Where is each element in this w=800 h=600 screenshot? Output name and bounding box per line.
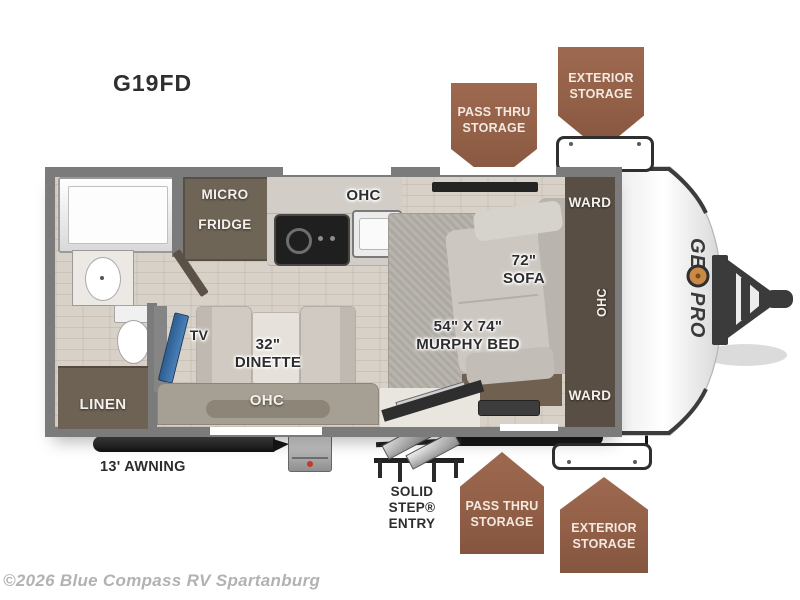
micro-label: MICRO [183, 186, 267, 204]
dinette-label: 32" DINETTE [215, 336, 321, 372]
solid-step-entry-label: SOLID STEP® ENTRY [366, 484, 458, 533]
step-leg [432, 462, 436, 482]
rv-floorplan-diagram: G19FD PASS THRU STORAGE EXTERIOR STORAGE… [0, 0, 800, 600]
badge-exterior-storage-bottom: EXTERIOR STORAGE [560, 477, 648, 573]
badge-label: STORAGE [471, 515, 534, 531]
tv-label: TV [184, 327, 214, 344]
dinette-size: 32" [215, 336, 321, 354]
badge-label: EXTERIOR [568, 71, 634, 87]
sofa-label: 72" SOFA [492, 252, 556, 288]
window-bottom-right [500, 424, 558, 431]
ohc-right-label: OHC [594, 276, 614, 330]
copyright-text: ©2026 Blue Compass RV Spartanburg [3, 571, 320, 591]
entry-text: ENTRY [366, 516, 458, 532]
hitch [712, 255, 793, 345]
dinette-text: DINETTE [215, 354, 321, 372]
pass-thru-compartment-bottom [552, 443, 652, 470]
murphy-bed-label: 54" X 74" MURPHY BED [398, 318, 538, 354]
murphy-bed-header [432, 182, 538, 192]
stove-cooktop [274, 214, 350, 266]
badge-pass-thru-storage-bottom: PASS THRU STORAGE [460, 452, 544, 554]
linen-label: LINEN [58, 395, 148, 415]
stove-knob [330, 236, 335, 241]
entry-mat [478, 400, 540, 416]
bathtub [58, 177, 178, 253]
sofa-size: 72" [492, 252, 556, 270]
murphy-bed-size: 54" X 74" [398, 318, 538, 336]
badge-label: EXTERIOR [571, 521, 637, 537]
screw-icon [569, 142, 573, 146]
window-top-right [440, 167, 556, 175]
screw-icon [567, 460, 571, 464]
bench-back-cushion [197, 307, 212, 387]
ward-top-label: WARD [565, 194, 615, 212]
screw-icon [633, 460, 637, 464]
step-leg [378, 460, 382, 478]
awning-label: 13' AWNING [100, 459, 210, 476]
stove-knob [318, 236, 323, 241]
step-leg [398, 462, 402, 482]
screw-icon [637, 142, 641, 146]
step-leg [454, 460, 458, 478]
fridge-label: FRIDGE [183, 216, 267, 234]
bench-back-cushion [340, 307, 355, 387]
ohc-bottom-label: OHC [157, 391, 377, 411]
badge-label: STORAGE [573, 537, 636, 553]
ward-bottom-label: WARD [565, 387, 615, 405]
trailer-front-cap: GE PRO [595, 140, 800, 460]
solid-step-text: SOLID STEP® [366, 484, 458, 516]
vanity-sink [72, 250, 134, 306]
kitchen-ohc-label: OHC [336, 187, 391, 205]
badge-label: STORAGE [570, 87, 633, 103]
badge-label: PASS THRU [457, 105, 530, 121]
badge-label: STORAGE [463, 121, 526, 137]
awning-bar [93, 436, 275, 452]
brand-suffix: PRO [686, 292, 708, 338]
bathroom-wall [172, 177, 183, 257]
compass-center [696, 274, 701, 279]
murphy-bed-text: MURPHY BED [398, 336, 538, 354]
model-title: G19FD [113, 70, 192, 97]
burner-icon [286, 228, 312, 254]
brand-prefix: GE [686, 238, 708, 269]
badge-label: PASS THRU [465, 499, 538, 515]
sofa-text: SOFA [492, 270, 556, 288]
window-top-left [283, 167, 391, 175]
sink-drain [100, 276, 104, 280]
window-bottom-left [210, 427, 322, 435]
